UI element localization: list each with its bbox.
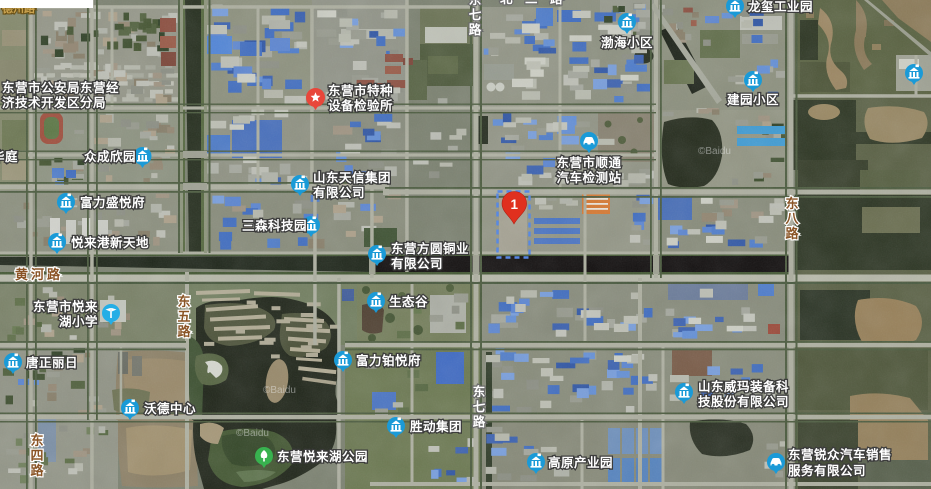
svg-text:生态谷: 生态谷 <box>389 294 428 309</box>
svg-text:路: 路 <box>469 22 482 37</box>
svg-text:路: 路 <box>785 226 799 241</box>
svg-text:济技术开发区分局: 济技术开发区分局 <box>2 95 106 110</box>
svg-text:七: 七 <box>469 8 482 22</box>
svg-text:东: 东 <box>177 294 190 309</box>
svg-text:东: 东 <box>30 433 43 448</box>
svg-text:建园小区: 建园小区 <box>727 92 779 107</box>
svg-text:设备检验所: 设备检验所 <box>328 98 393 113</box>
svg-text:路: 路 <box>177 324 191 339</box>
svg-text:技股份有限公司: 技股份有限公司 <box>698 394 789 409</box>
svg-text:黄河路: 黄河路 <box>15 267 63 282</box>
svg-text:东营市特种: 东营市特种 <box>328 83 393 98</box>
svg-text:八: 八 <box>784 211 799 226</box>
svg-text:高原产业园: 高原产业园 <box>548 455 613 470</box>
svg-text:东: 东 <box>785 196 798 211</box>
svg-text:三森科技园: 三森科技园 <box>242 218 307 233</box>
svg-text:东营方圆铜业: 东营方圆铜业 <box>391 241 469 256</box>
svg-text:山东威玛装备科: 山东威玛装备科 <box>698 379 789 394</box>
svg-text:路: 路 <box>473 414 486 429</box>
svg-text:东营市悦来: 东营市悦来 <box>33 299 98 314</box>
svg-text:沃德中心: 沃德中心 <box>144 401 196 416</box>
svg-text:五: 五 <box>177 309 190 324</box>
svg-text:北 二 路: 北 二 路 <box>500 0 563 6</box>
svg-text:有限公司: 有限公司 <box>313 185 365 200</box>
svg-text:华庭: 华庭 <box>0 149 18 164</box>
svg-text:东营锐众汽车销售: 东营锐众汽车销售 <box>788 447 892 462</box>
svg-text:汽车检测站: 汽车检测站 <box>556 170 621 185</box>
svg-text:东: 东 <box>469 0 482 7</box>
svg-text:东营悦来湖公园: 东营悦来湖公园 <box>277 449 368 464</box>
svg-text:众成欣园: 众成欣园 <box>84 149 136 164</box>
svg-text:四: 四 <box>30 448 43 463</box>
svg-text:东营市公安局东营经: 东营市公安局东营经 <box>2 80 119 95</box>
svg-text:渤海小区: 渤海小区 <box>601 35 653 50</box>
svg-text:龙玺工业园: 龙玺工业园 <box>747 0 813 14</box>
svg-text:唐正丽日: 唐正丽日 <box>26 355 78 370</box>
svg-text:1: 1 <box>511 197 519 212</box>
svg-text:富力铂悦府: 富力铂悦府 <box>356 353 421 368</box>
svg-text:服务有限公司: 服务有限公司 <box>788 463 866 478</box>
svg-text:路: 路 <box>30 463 44 478</box>
svg-text:胜动集团: 胜动集团 <box>410 419 462 434</box>
svg-text:悦来港新天地: 悦来港新天地 <box>71 235 149 250</box>
svg-text:东: 东 <box>473 384 486 399</box>
svg-text:富力盛悦府: 富力盛悦府 <box>80 195 145 210</box>
svg-text:山东天信集团: 山东天信集团 <box>313 170 391 185</box>
svg-text:东营市顺通: 东营市顺通 <box>556 155 621 170</box>
svg-text:七: 七 <box>473 400 486 414</box>
svg-text:湖小学: 湖小学 <box>59 314 98 329</box>
svg-text:有限公司: 有限公司 <box>391 256 443 271</box>
